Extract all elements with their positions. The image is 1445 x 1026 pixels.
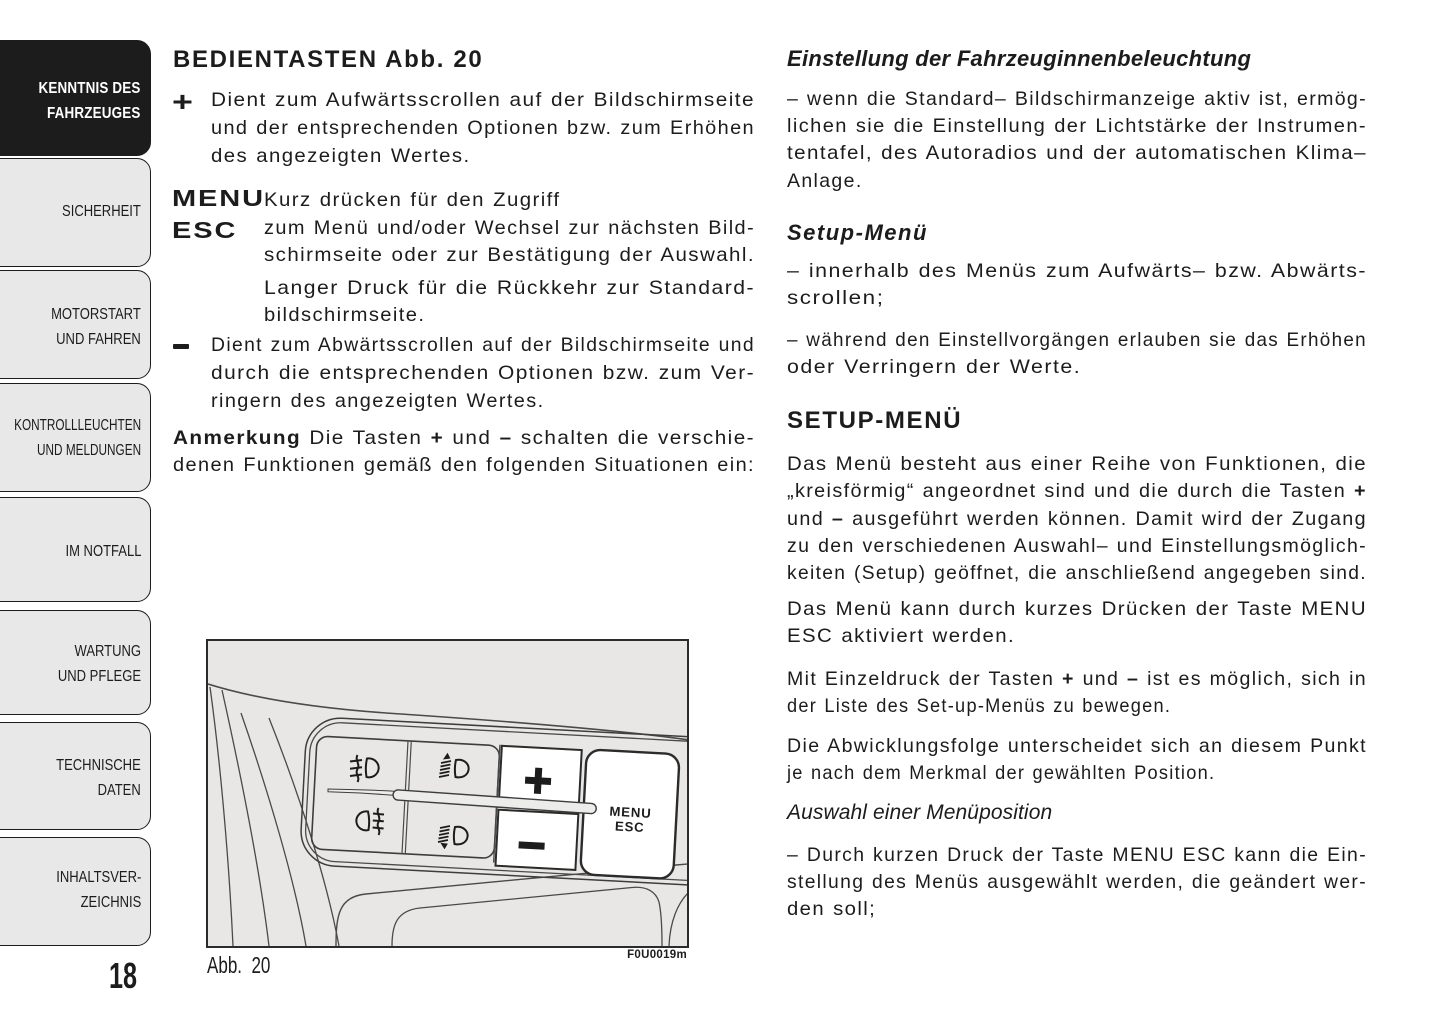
svg-text:ESC: ESC <box>615 818 645 835</box>
